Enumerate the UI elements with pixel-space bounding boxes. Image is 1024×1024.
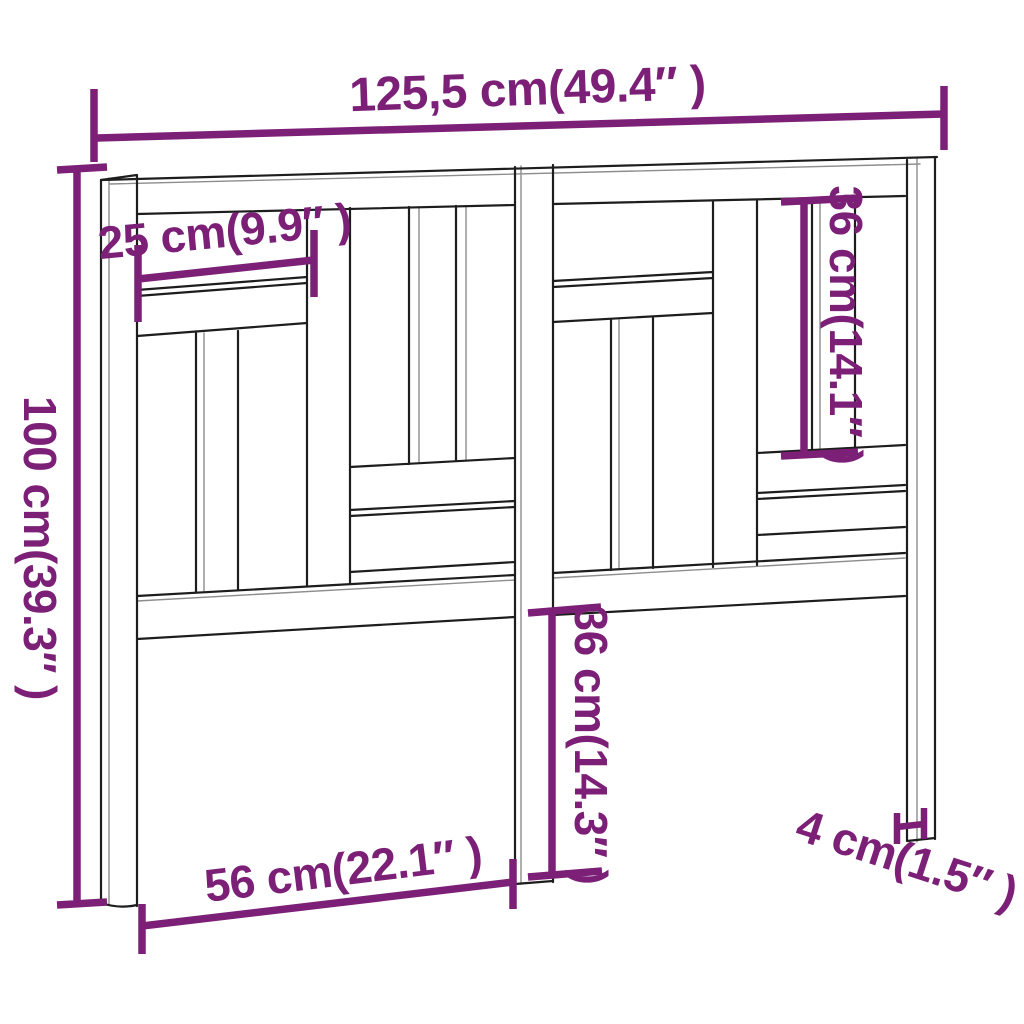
dimension-leg-spacing: 56 cm(22.1″ ) xyxy=(142,826,513,954)
left-post xyxy=(101,175,137,907)
dimension-label-total-width: 125,5 cm(49.4″ ) xyxy=(348,57,706,122)
dimension-annotations: 125,5 cm(49.4″ ) 100 cm(39.3″ ) 25 cm(9.… xyxy=(14,57,1024,954)
dimension-total-height: 100 cm(39.3″ ) xyxy=(14,167,107,905)
dimension-top-board: 25 cm(9.9″ ) xyxy=(96,193,354,322)
dimension-upper-panel: 36 cm(14.1″ ) xyxy=(781,186,872,465)
dimension-total-width: 125,5 cm(49.4″ ) xyxy=(94,57,944,162)
dimension-leg-height: 36 cm(14.3″ ) xyxy=(528,606,617,885)
headboard-dimension-diagram: 125,5 cm(49.4″ ) 100 cm(39.3″ ) 25 cm(9.… xyxy=(0,0,1024,1024)
dimension-label-leg-height: 36 cm(14.3″ ) xyxy=(565,606,617,885)
diagram-canvas: 125,5 cm(49.4″ ) 100 cm(39.3″ ) 25 cm(9.… xyxy=(0,0,1024,1024)
dimension-label-upper-panel: 36 cm(14.1″ ) xyxy=(820,186,872,465)
dimension-label-total-height: 100 cm(39.3″ ) xyxy=(14,396,66,700)
right-post xyxy=(907,157,935,841)
left-panel-slats xyxy=(137,206,515,592)
